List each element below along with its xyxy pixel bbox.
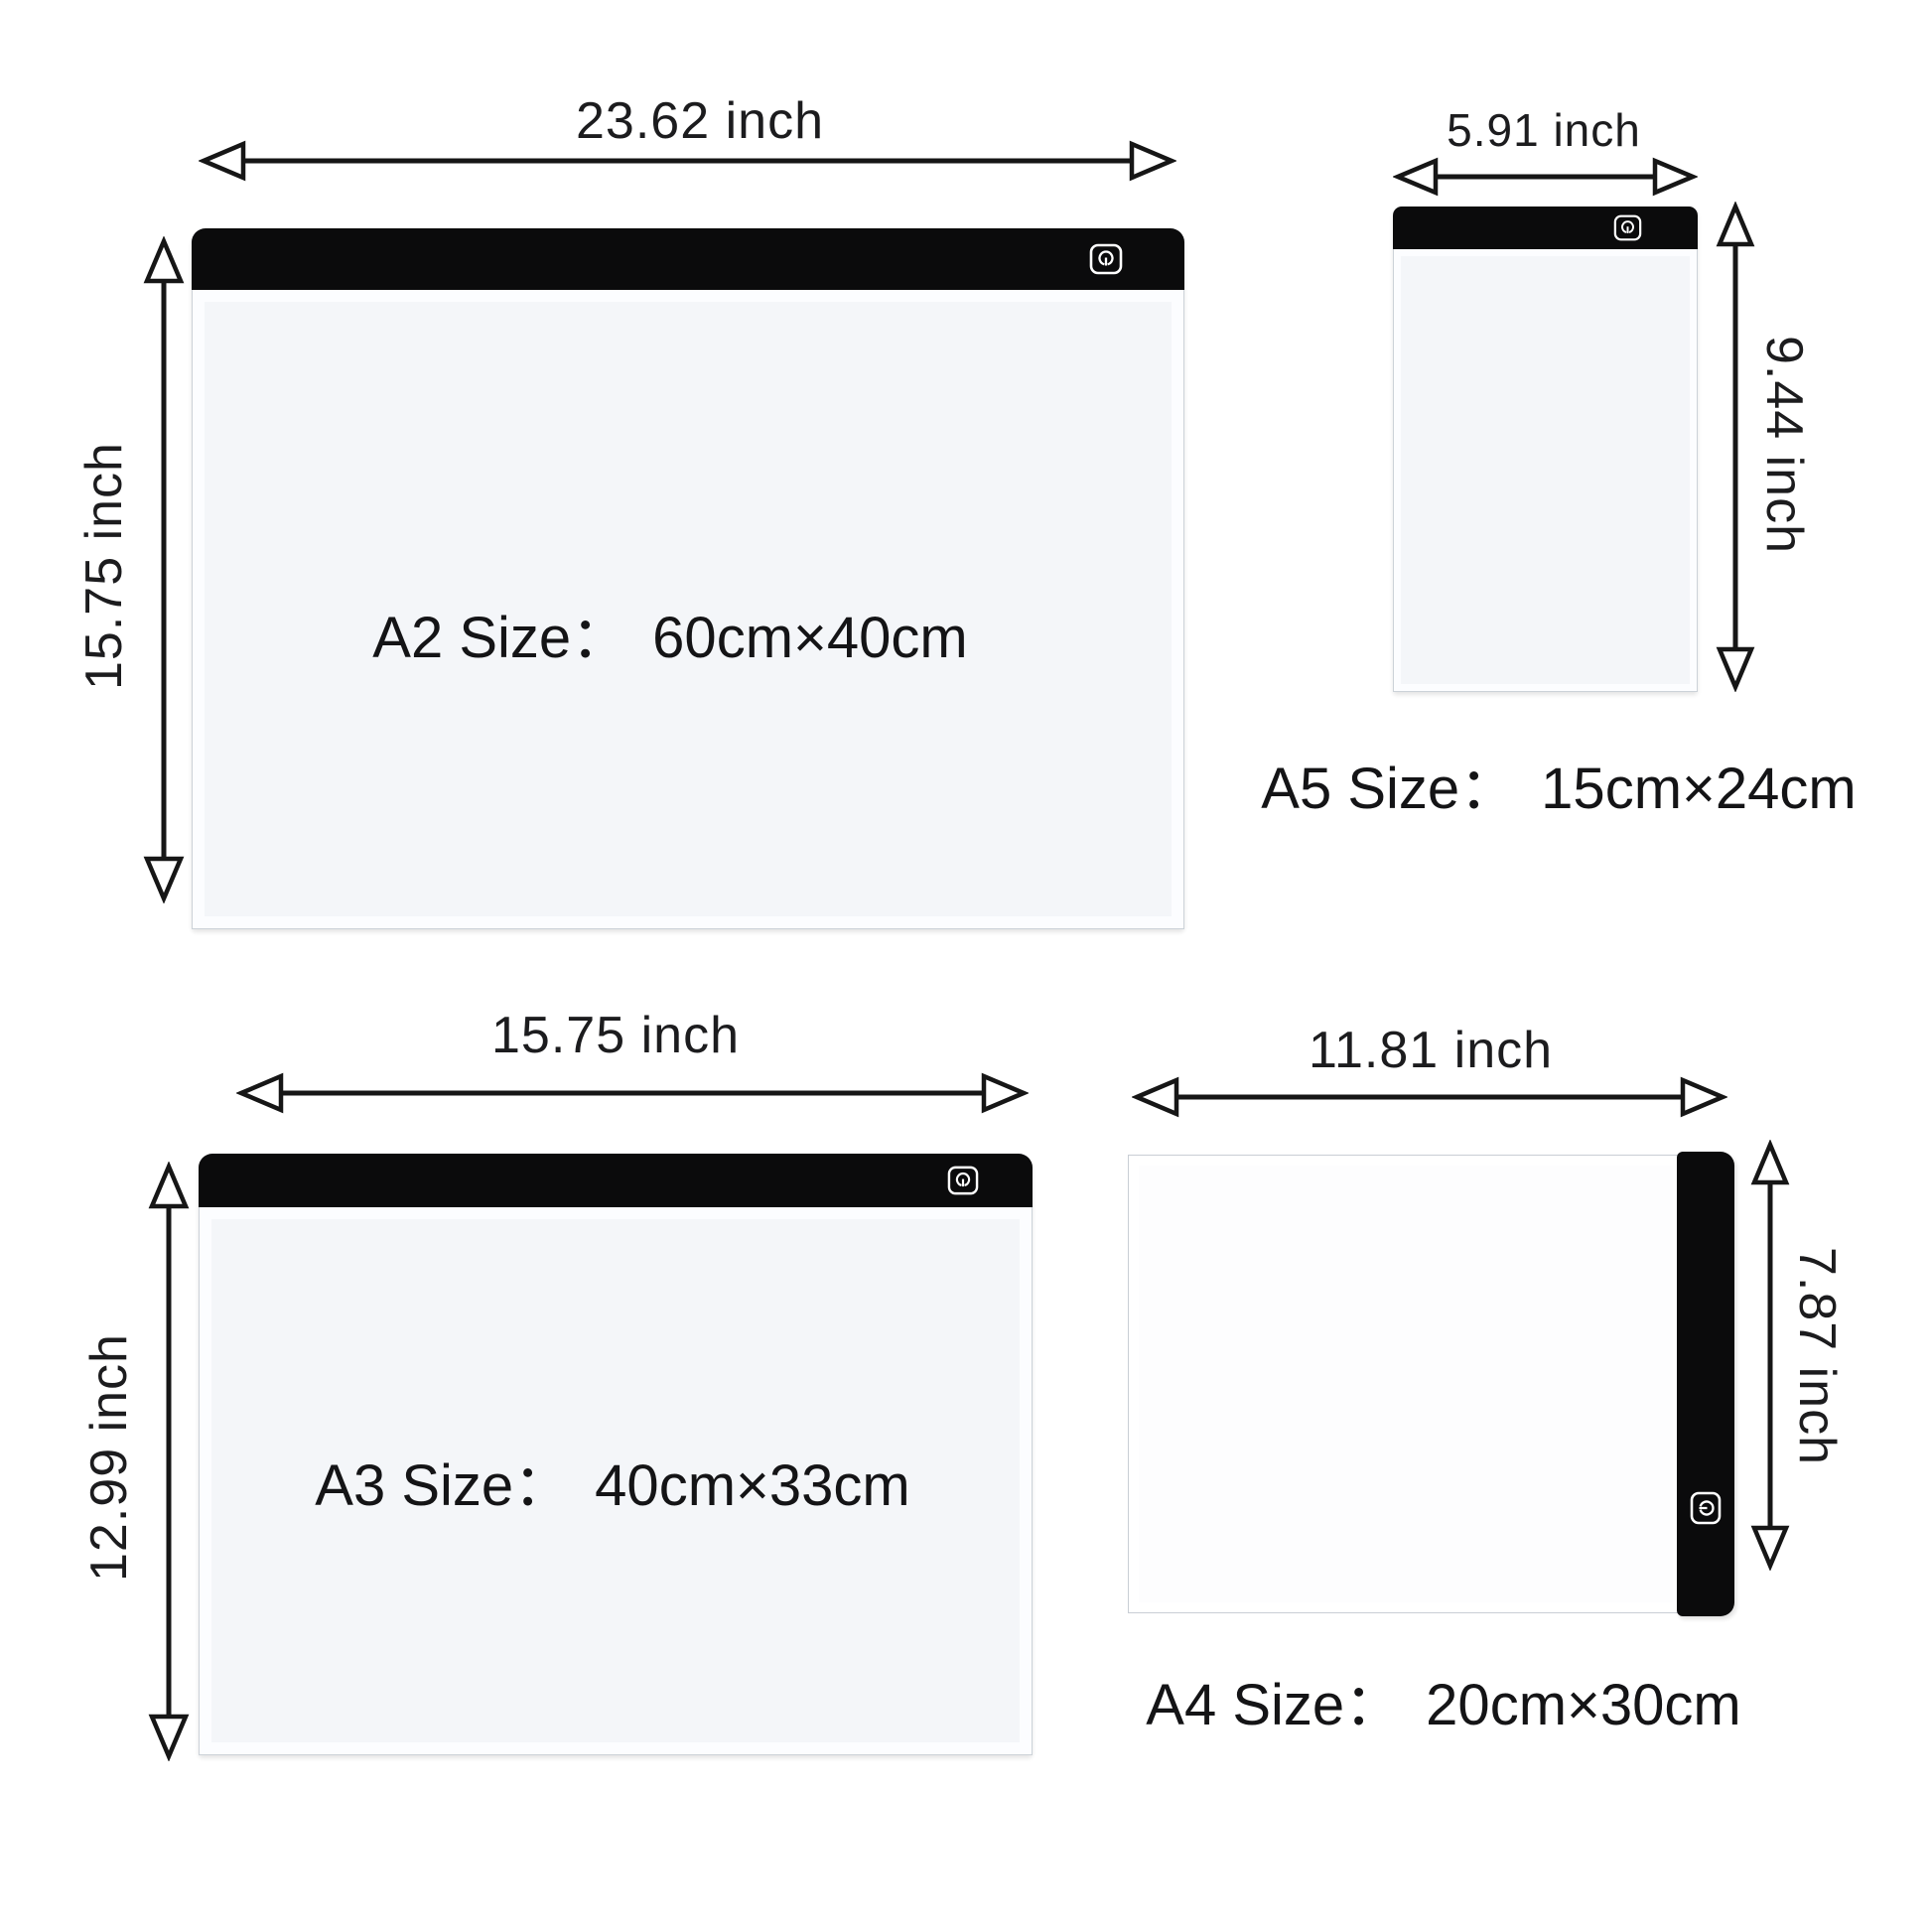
a4-pad-surface — [1128, 1155, 1684, 1613]
a4-height-arrow — [1748, 1140, 1792, 1571]
a4-size-caption-value: 20cm×30cm — [1426, 1673, 1741, 1737]
a4-width-dimension-label: 11.81 inch — [1309, 1021, 1553, 1080]
size-comparison-diagram: 23.62 inch 15.75 inch — [0, 0, 1932, 1932]
a4-width-arrow — [1132, 1075, 1727, 1119]
power-icon — [1689, 1492, 1723, 1524]
a4-group: 11.81 inch 7.87 inch — [0, 0, 1932, 1932]
a4-size-caption-label: A4 Size： — [1146, 1673, 1402, 1737]
a4-size-caption: A4 Size：20cm×30cm — [1146, 1658, 1740, 1741]
a4-height-dimension-label: 7.87 inch — [1787, 1247, 1847, 1465]
a4-pad-control-bar — [1677, 1152, 1734, 1616]
